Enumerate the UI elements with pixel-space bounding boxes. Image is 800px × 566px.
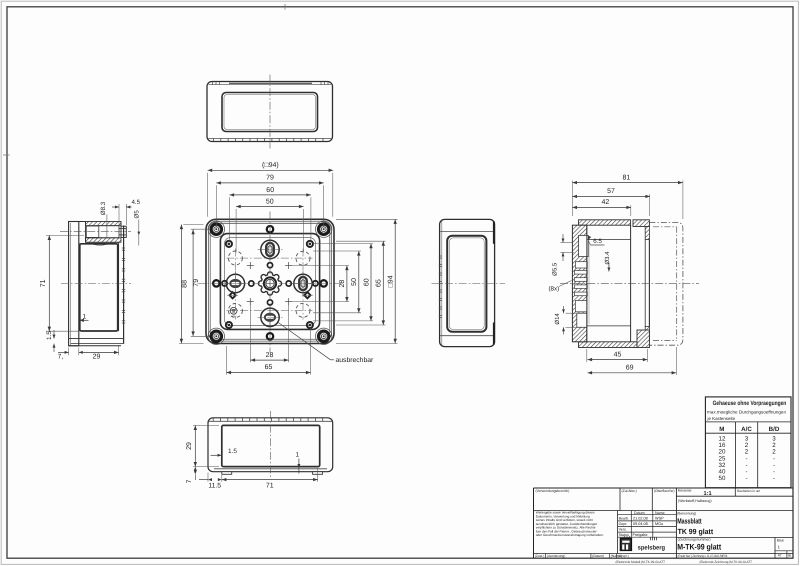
svg-text:Ø8.3: Ø8.3 — [100, 201, 107, 215]
svg-text:(8x): (8x) — [548, 286, 559, 293]
svg-text:60: 60 — [266, 187, 274, 194]
svg-text:6.5: 6.5 — [593, 238, 602, 245]
svg-text:29: 29 — [93, 353, 101, 360]
svg-text:79: 79 — [266, 175, 274, 182]
svg-text:Name: Name — [655, 511, 665, 515]
svg-text:Massblatt: Massblatt — [677, 516, 702, 525]
svg-text:(Verwendungsbereich): (Verwendungsbereich) — [536, 489, 570, 493]
svg-text:TK 99 glatt: TK 99 glatt — [678, 527, 714, 536]
svg-text:21.02.08: 21.02.08 — [633, 517, 648, 521]
svg-text:Bl.: Bl. — [788, 553, 792, 557]
svg-text:47: 47 — [778, 553, 782, 557]
svg-text:50: 50 — [266, 198, 274, 205]
svg-text:7,: 7, — [58, 353, 64, 360]
svg-text:spelsberg: spelsberg — [638, 544, 666, 551]
svg-text:Freigabe: Freigabe — [633, 533, 648, 537]
svg-text:4.5: 4.5 — [131, 199, 140, 206]
svg-text:ausbrechbar: ausbrechbar — [336, 357, 375, 364]
svg-text:65: 65 — [265, 364, 273, 371]
svg-text:A/C: A/C — [741, 426, 752, 433]
svg-text:60: 60 — [363, 278, 370, 286]
svg-text:Ø5.5: Ø5.5 — [551, 262, 558, 276]
svg-text:(Elektronik Modell:)M-TK-99-GL: (Elektronik Modell:)M-TK-99-GLATT — [616, 560, 666, 564]
svg-text:Gepr.: Gepr. — [619, 522, 628, 526]
svg-text:Rauheiten in um: Rauheiten in um — [737, 489, 761, 493]
svg-text:81: 81 — [623, 175, 631, 182]
svg-text:(Benennung): (Benennung) — [677, 511, 696, 515]
svg-text:(Zeichnungsnummer): (Zeichnungsnummer) — [678, 538, 711, 542]
svg-text:(Aenderung): (Aenderung) — [547, 554, 565, 558]
svg-text:1:1: 1:1 — [704, 491, 712, 497]
svg-text:(Oberflaeche): (Oberflaeche) — [654, 489, 675, 493]
svg-text:65: 65 — [376, 279, 383, 287]
svg-text:Gehaeuse ohne Vorpraegungen: Gehaeuse ohne Vorpraegungen — [713, 400, 787, 407]
svg-text:1: 1 — [296, 452, 300, 459]
svg-text:42: 42 — [602, 199, 610, 206]
svg-text:(Urspr.): (Urspr.) — [618, 554, 629, 558]
svg-text:Datum: Datum — [634, 511, 645, 515]
svg-text:1: 1 — [83, 313, 87, 320]
svg-text:Blatt: Blatt — [777, 539, 784, 543]
svg-text:71: 71 — [266, 482, 274, 489]
svg-text:1.5: 1.5 — [46, 331, 53, 340]
svg-text:(Werkstoff,Halbzeug): (Werkstoff,Halbzeug) — [678, 499, 712, 503]
svg-text:(Datum): (Datum) — [592, 554, 604, 558]
svg-text:Ø5: Ø5 — [134, 210, 141, 219]
svg-text:11.5: 11.5 — [208, 482, 221, 489]
svg-text:71: 71 — [40, 279, 47, 287]
svg-text:-: - — [773, 475, 775, 482]
svg-text:>PS<: >PS< — [231, 315, 238, 318]
svg-text:1.5: 1.5 — [228, 448, 237, 455]
svg-text:M-TK-99 glatt: M-TK-99 glatt — [677, 542, 721, 551]
svg-text:50: 50 — [351, 278, 358, 286]
svg-text:B/D: B/D — [769, 426, 780, 433]
svg-text:oder Geschmacksmustereintragun: oder Geschmacksmustereintragung vorbehal… — [536, 533, 604, 537]
svg-text:Massstab: Massstab — [678, 489, 692, 493]
svg-text:M: M — [719, 426, 724, 433]
svg-text:je Kastenseite: je Kastenseite — [707, 416, 736, 421]
svg-text:□94: □94 — [388, 275, 395, 287]
svg-text:(Zul.Abw.): (Zul.Abw.) — [622, 489, 637, 493]
svg-text:Vers.: Vers. — [619, 528, 627, 532]
svg-text:09.04.08: 09.04.08 — [633, 522, 648, 526]
svg-text:45: 45 — [614, 352, 622, 359]
svg-text:69: 69 — [626, 365, 634, 372]
svg-text:MGu: MGu — [655, 522, 663, 526]
svg-text:(Elektronik Zeichnung:)M-TK-99: (Elektronik Zeichnung:)M-TK-99-GLATT — [700, 560, 753, 564]
svg-text:57: 57 — [607, 188, 615, 195]
svg-text:(□94): (□94) — [262, 161, 279, 169]
svg-text:50: 50 — [719, 475, 726, 482]
svg-text:Status: Status — [619, 533, 629, 537]
svg-text:WSP: WSP — [655, 517, 664, 521]
svg-text:28: 28 — [266, 352, 274, 359]
svg-text:Ø14: Ø14 — [554, 313, 561, 325]
svg-text:(Ersatz fuer:) Zeichnung v. 1: (Ersatz fuer:) Zeichnung v. 11.07.2002 /… — [678, 554, 728, 558]
svg-text:Ø3.4: Ø3.4 — [604, 251, 611, 265]
svg-text:79: 79 — [193, 279, 200, 287]
svg-text:28: 28 — [339, 280, 346, 288]
svg-text:29: 29 — [186, 442, 193, 450]
svg-text:7: 7 — [186, 479, 193, 483]
svg-text:Bearb.: Bearb. — [619, 517, 630, 521]
svg-text:88: 88 — [182, 280, 189, 288]
svg-text:max.moegliche Durchgangsoeffnu: max.moegliche Durchgangsoeffnungen — [707, 410, 787, 415]
svg-text:(Zust.): (Zust.) — [535, 554, 545, 558]
svg-text:-: - — [745, 475, 747, 482]
